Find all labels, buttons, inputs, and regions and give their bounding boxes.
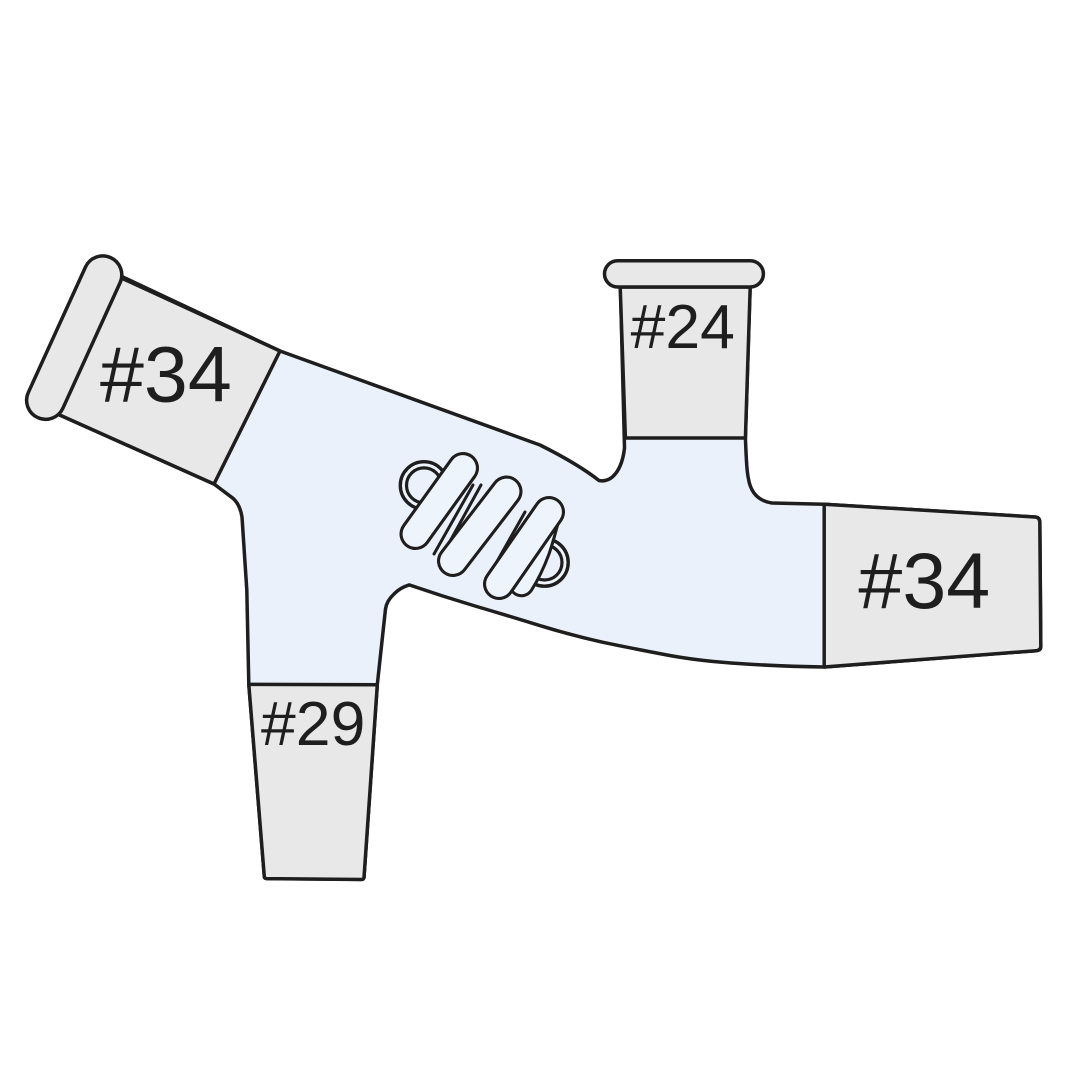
svg-text:#34: #34 [100,329,232,418]
svg-text:#29: #29 [261,689,365,759]
svg-text:#24: #24 [631,292,735,362]
svg-text:#34: #34 [858,536,990,625]
